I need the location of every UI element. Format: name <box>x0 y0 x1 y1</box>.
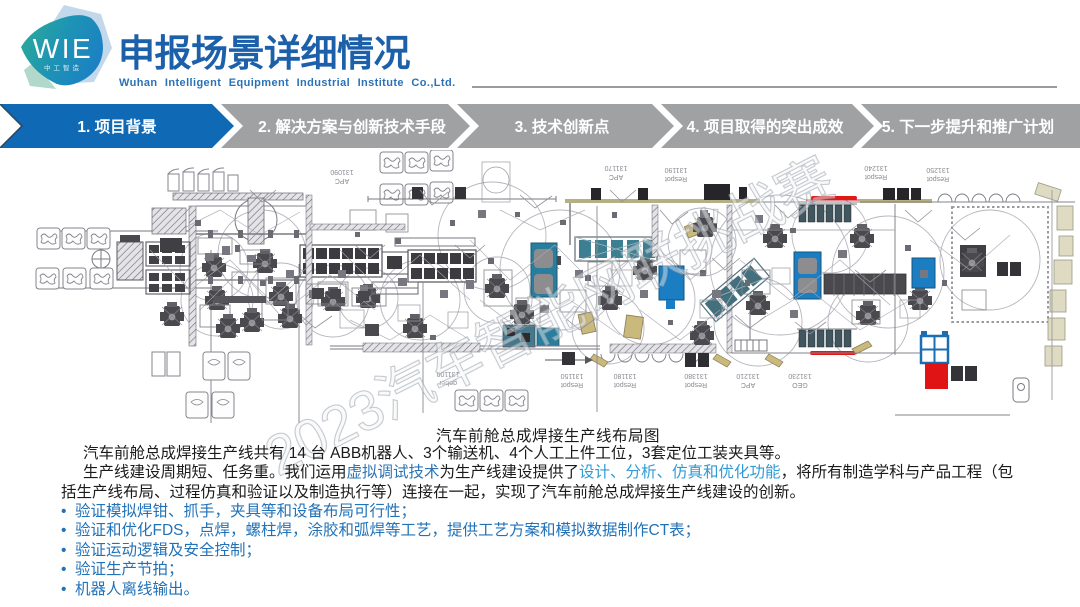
svg-text:4. 项目取得的突出成效: 4. 项目取得的突出成效 <box>687 117 844 136</box>
svg-text:1. 项目背景: 1. 项目背景 <box>77 117 156 136</box>
svg-text:中工智造: 中工智造 <box>44 63 82 72</box>
svg-text:3. 技术创新点: 3. 技术创新点 <box>515 117 610 136</box>
svg-text:2. 解决方案与创新技术手段: 2. 解决方案与创新技术手段 <box>258 117 446 136</box>
svg-text:WIE: WIE <box>33 33 93 64</box>
svg-text:5. 下一步提升和推广计划: 5. 下一步提升和推广计划 <box>882 117 1054 136</box>
